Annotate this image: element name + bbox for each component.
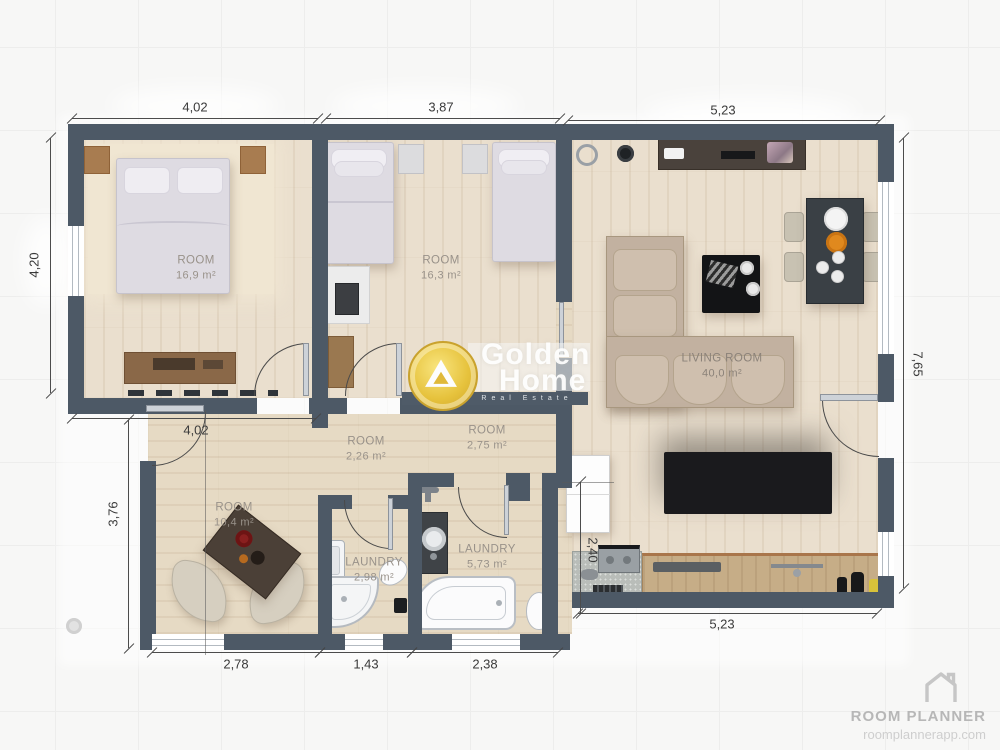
wall (309, 398, 347, 414)
plate (824, 207, 848, 231)
small-plate (831, 270, 844, 283)
small-plate (832, 251, 845, 264)
room-area: 2,98 m² (345, 570, 403, 584)
door-leaf (303, 343, 309, 396)
desk (326, 266, 370, 324)
dimension-line (326, 118, 560, 119)
room-name: LAUNDRY (345, 556, 403, 568)
console-decor (664, 148, 684, 159)
room-label-living-room: LIVING ROOM 40,0 m² (681, 351, 762, 380)
nightstand (398, 144, 424, 174)
window (152, 634, 224, 650)
wall (878, 354, 894, 402)
dimension-line (568, 120, 880, 121)
dimension-label: 5,23 (709, 617, 734, 632)
app-branding: ROOM PLANNER roomplannerapp.com (851, 671, 986, 742)
dimension-line (903, 138, 904, 588)
wall (542, 473, 558, 634)
dimension-line (72, 118, 318, 119)
dimension-label: 1,43 (353, 657, 378, 672)
coffee-table (702, 255, 760, 313)
window (68, 226, 84, 296)
window (878, 532, 894, 576)
door-leaf (388, 498, 393, 550)
dimension-label: 2,38 (472, 657, 497, 672)
pillow (501, 160, 547, 175)
wall (408, 473, 454, 487)
sink-faucet (430, 553, 437, 560)
nightstand (462, 144, 488, 174)
dimension-label: 3,76 (106, 501, 121, 526)
wall (506, 473, 530, 501)
app-name: ROOM PLANNER (851, 708, 986, 725)
extension-line (205, 410, 206, 655)
fridge-seam (567, 494, 610, 495)
room-area: 5,73 m² (458, 557, 516, 571)
sofa-cushion (613, 295, 677, 337)
room-label-sitting-room: ROOM 10,4 m² (214, 500, 254, 529)
room-label-hall-2: ROOM 2,75 m² (467, 423, 507, 452)
bowl (581, 569, 598, 580)
wall (68, 124, 894, 140)
tv (721, 151, 755, 159)
wall (878, 124, 894, 182)
wall (312, 140, 328, 398)
dim-tick (46, 132, 57, 143)
dimension-line (578, 613, 877, 614)
sink-drain (793, 569, 801, 577)
bowl-of-food (826, 232, 847, 253)
round-sink (422, 527, 446, 551)
dimension-line (72, 418, 316, 419)
room-name: LIVING ROOM (681, 352, 762, 364)
shower-drain (341, 596, 347, 602)
sink-faucet (771, 564, 823, 568)
dimension-line (128, 420, 129, 648)
speaker (617, 145, 634, 162)
single-bed (324, 142, 394, 264)
dimension-label: 7,65 (911, 351, 926, 376)
room-name: ROOM (215, 501, 252, 513)
room-label-hall-1: ROOM 2,26 m² (346, 434, 386, 463)
window (878, 182, 894, 354)
room-label-laundry-1: LAUNDRY 2,98 m² (345, 555, 403, 584)
room-name: ROOM (177, 254, 214, 266)
dimension-label: 4,02 (182, 100, 207, 115)
dim-tick (46, 388, 57, 399)
small-plate (816, 261, 829, 274)
wall (878, 458, 894, 532)
nightstand (84, 146, 110, 174)
bathtub (412, 576, 516, 630)
dresser (124, 352, 236, 384)
dimension-label: 5,23 (710, 103, 735, 118)
dimension-label: 2,40 (586, 537, 601, 562)
dimension-line (412, 652, 558, 653)
dining-chair (784, 252, 804, 282)
window (345, 634, 383, 650)
plate (746, 282, 760, 296)
room-label-bedroom-2: ROOM 16,3 m² (421, 253, 461, 282)
single-bed (492, 142, 556, 262)
door-leaf (396, 343, 402, 396)
dimension-line (50, 138, 51, 393)
plate (740, 261, 754, 275)
wall (408, 480, 422, 634)
blanket-fold (325, 201, 393, 209)
dimension-label: 3,87 (428, 100, 453, 115)
room-name: ROOM (347, 435, 384, 447)
room-area: 40,0 m² (681, 366, 762, 380)
room-area: 16,9 m² (176, 268, 216, 282)
blanket-fold (117, 221, 229, 231)
room-label-bedroom-1: ROOM 16,9 m² (176, 253, 216, 282)
shower-tray (331, 584, 371, 620)
burner (606, 556, 614, 564)
tv-console (658, 138, 806, 170)
room-area: 16,3 m² (421, 268, 461, 282)
dimension-label: 2,78 (223, 657, 248, 672)
sofa-cushion (615, 355, 669, 405)
dresser-items (153, 358, 195, 370)
wall (140, 461, 156, 650)
room-area: 10,4 m² (214, 515, 254, 529)
decor-fruit (237, 552, 250, 565)
pillow (177, 167, 223, 194)
tub-drain (496, 600, 502, 606)
door-leaf (504, 485, 509, 535)
dimension-line (580, 482, 581, 613)
extension-line (562, 482, 614, 483)
entrance-door-leaf (146, 405, 204, 412)
pillow (334, 161, 384, 177)
dresser-items (203, 360, 223, 369)
room-name: LAUNDRY (458, 543, 516, 555)
watermark-word-home: Home (499, 364, 586, 398)
decorative-dot (66, 618, 82, 634)
decor-bowl (232, 527, 256, 551)
wall (318, 495, 332, 634)
wall (556, 140, 572, 302)
stove (598, 545, 640, 573)
wall (572, 592, 894, 608)
console-decor (767, 142, 793, 163)
dining-chair (784, 212, 804, 242)
wall (312, 414, 328, 428)
room-area: 2,75 m² (467, 438, 507, 452)
monitor (335, 283, 359, 315)
balcony-door-leaf (820, 394, 878, 401)
window (452, 634, 520, 650)
sofa-cushion (613, 249, 677, 291)
fridge (566, 455, 610, 533)
dimension-line (320, 652, 412, 653)
room-area: 2,26 m² (346, 449, 386, 463)
area-rug (664, 452, 832, 514)
house-icon (851, 671, 986, 708)
app-url: roomplannerapp.com (851, 727, 986, 742)
floor-lamp (576, 144, 598, 166)
dining-table (806, 198, 864, 304)
nightstand (240, 146, 266, 174)
room-name: ROOM (468, 424, 505, 436)
floor-plan-canvas: ROOM 16,9 m² ROOM 16,3 m² LIVING ROOM 40… (0, 0, 1000, 750)
room-label-laundry-2: LAUNDRY 5,73 m² (458, 542, 516, 571)
utensil-tray (653, 562, 721, 572)
golden-home-logo-icon (408, 341, 478, 411)
burner (623, 556, 631, 564)
decor-dish (248, 548, 268, 568)
books (706, 260, 738, 288)
room-name: ROOM (422, 254, 459, 266)
bathtub-basin (426, 586, 506, 620)
pillow (124, 167, 170, 194)
shower-head-stem (425, 493, 431, 502)
trash-bin (394, 598, 407, 613)
dimension-line (152, 652, 320, 653)
dimension-label: 4,20 (27, 252, 42, 277)
